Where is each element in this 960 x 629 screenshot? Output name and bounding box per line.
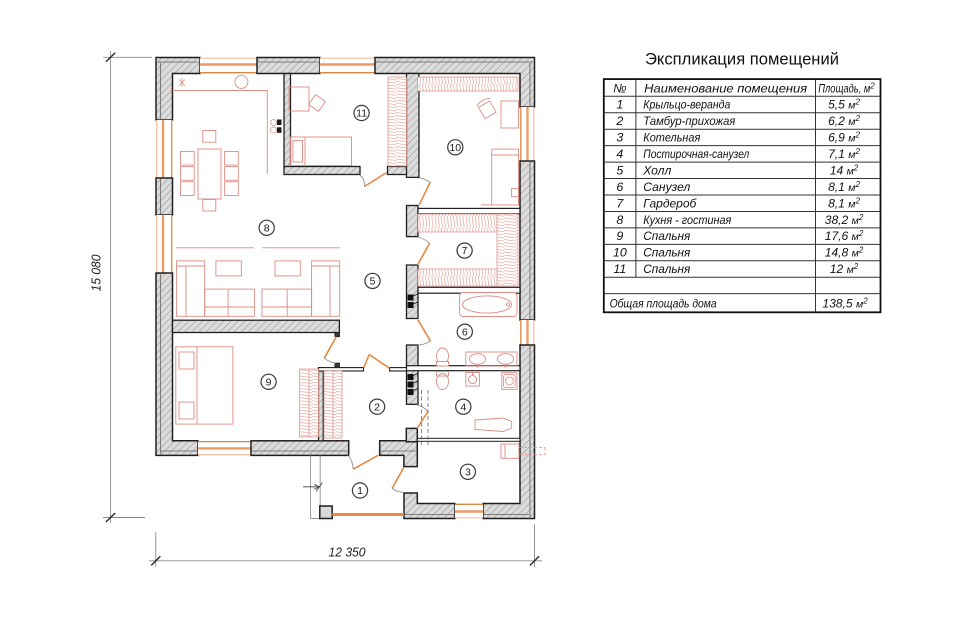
svg-text:Холл: Холл: [642, 163, 671, 177]
svg-text:5: 5: [370, 276, 376, 288]
svg-text:Крыльцо-веранда: Крыльцо-веранда: [643, 98, 730, 112]
svg-text:Гардероб: Гардероб: [643, 196, 697, 210]
svg-text:Санузел: Санузел: [643, 180, 690, 194]
svg-text:4: 4: [616, 147, 623, 161]
svg-text:Котельная: Котельная: [643, 131, 700, 145]
svg-text:15 080: 15 080: [89, 254, 104, 292]
svg-text:12 350: 12 350: [329, 545, 367, 560]
svg-text:2: 2: [615, 114, 623, 128]
svg-text:10: 10: [449, 142, 461, 154]
svg-text:3: 3: [616, 131, 623, 145]
svg-text:6: 6: [462, 326, 468, 338]
svg-text:Общая площадь дома: Общая площадь дома: [610, 297, 717, 311]
svg-text:Экспликация помещений: Экспликация помещений: [645, 50, 839, 69]
svg-text:138,5 м2: 138,5 м2: [822, 297, 868, 311]
svg-text:5: 5: [616, 163, 623, 177]
svg-text:8: 8: [264, 222, 270, 234]
svg-text:2: 2: [374, 401, 380, 413]
svg-text:8: 8: [616, 213, 623, 227]
svg-text:10: 10: [613, 246, 627, 260]
svg-text:Постирочная-санузел: Постирочная-санузел: [643, 147, 749, 161]
svg-text:9: 9: [616, 229, 623, 243]
svg-text:Кухня - гостиная: Кухня - гостиная: [643, 213, 731, 227]
svg-text:№: №: [613, 82, 627, 96]
svg-text:1: 1: [616, 98, 623, 112]
svg-text:Площадь, м2: Площадь, м2: [818, 82, 875, 96]
svg-text:Тамбур-прихожая: Тамбур-прихожая: [643, 114, 735, 128]
svg-text:Спальня: Спальня: [643, 262, 690, 276]
svg-text:38,2 м2: 38,2 м2: [825, 213, 864, 227]
svg-text:4: 4: [460, 401, 466, 413]
svg-text:9: 9: [266, 376, 272, 388]
svg-text:11: 11: [613, 262, 626, 276]
svg-text:1: 1: [357, 485, 363, 497]
svg-text:11: 11: [356, 108, 367, 120]
svg-text:14,8 м2: 14,8 м2: [825, 246, 864, 260]
svg-text:7: 7: [462, 245, 468, 257]
svg-text:7: 7: [616, 196, 624, 210]
svg-text:Спальня: Спальня: [643, 246, 690, 260]
svg-text:6: 6: [616, 180, 623, 194]
svg-text:3: 3: [465, 466, 471, 478]
svg-text:Спальня: Спальня: [643, 229, 690, 243]
svg-text:Наименование помещения: Наименование помещения: [644, 82, 807, 96]
svg-text:17,6 м2: 17,6 м2: [825, 229, 864, 243]
